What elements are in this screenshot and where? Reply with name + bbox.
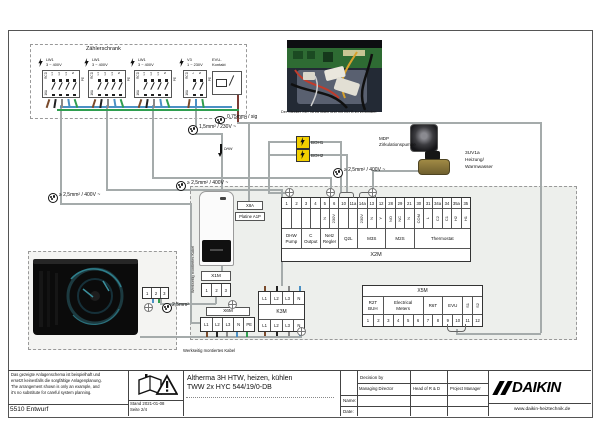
- terminal-dot: [151, 94, 154, 97]
- platine-a1p-box: Platine A1P: [235, 212, 265, 221]
- terminal-dot: [193, 94, 196, 97]
- x2m-terminal-4: 4: [310, 198, 319, 208]
- x2m-terminal-5: 5: [320, 198, 329, 208]
- x2m-terminal-34: 34: [442, 198, 451, 208]
- x1m-terminal-1: 1: [202, 284, 211, 296]
- indoor-unit-panel-text: [210, 249, 223, 251]
- indoor-unit-panel: [202, 240, 231, 262]
- valve-label-3: Warmwasser: [465, 165, 493, 171]
- wire-segment: [540, 122, 542, 333]
- x2m-symbol-cell: Y: [376, 208, 385, 228]
- terminal-dot: [112, 79, 115, 82]
- mdp-label-2: Zirkulationspumpe: [379, 142, 416, 147]
- zaehlerschrank-label: Zählerschrank: [86, 46, 121, 52]
- wire-segment: [106, 189, 281, 191]
- x5m-terminal-7: 7: [423, 314, 433, 326]
- x2m-terminal-34a: 34a: [432, 198, 441, 208]
- x5m-terminal-strip: X5M R2T BUHElectrical MetersR6TEVUS1S2 1…: [362, 285, 483, 327]
- x2m-symbol-cell: C1: [442, 208, 451, 228]
- k3m-contactor: L1L2L3N K3M L1L2L3N: [258, 291, 305, 332]
- k3m-top-terminal-L1: L1: [259, 292, 270, 304]
- x2m-terminal-10: 10: [338, 198, 347, 208]
- supply-bolt-icon: [84, 58, 89, 67]
- x2m-symbol-cell: COM: [414, 208, 423, 228]
- x2m-symbol-cell: 230V: [329, 208, 338, 228]
- breaker-box: RCD16AL1L2L3N: [42, 70, 80, 98]
- cable-icon-sig: [215, 116, 225, 124]
- cable-label-400-3: ≥ 2,5mm² / 400V ~: [344, 168, 385, 174]
- x2m-terminal-12: 12: [376, 198, 385, 208]
- terminal-dot: [98, 94, 101, 97]
- breaker-box: RCD16ALN: [183, 70, 207, 98]
- terminal-dot: [59, 79, 62, 82]
- breaker-voltage-label: 1 ~ 230V: [187, 62, 203, 67]
- cable-label-230: 1,5mm² / 230V ~: [199, 125, 236, 131]
- terminal-dot: [52, 94, 55, 97]
- decision-by-label: Decision by: [360, 375, 383, 380]
- terminal-dot: [165, 94, 168, 97]
- wire-segment: [106, 105, 108, 189]
- x5m-group-label: S2: [472, 297, 482, 314]
- x2m-terminal-strip: 1234561011a14a1312282921303134a3435a35 N…: [281, 197, 471, 262]
- role-managing-director: Managing Director: [359, 387, 393, 392]
- evu-relay-symbol: [216, 79, 227, 87]
- x2m-terminal-29: 29: [395, 198, 404, 208]
- terminal-label: L1: [50, 72, 54, 75]
- x6m-terminal-L3: L3: [222, 318, 233, 331]
- wire-segment: [195, 133, 222, 135]
- valve-image-body: [418, 159, 450, 175]
- terminal-label: N: [198, 72, 202, 74]
- terminal-label: N: [71, 72, 75, 74]
- terminal-label: L2: [149, 72, 153, 75]
- x2m-group-label: Q2L: [338, 228, 357, 248]
- terminal-dot: [158, 79, 161, 82]
- switch-symbol: [199, 82, 203, 90]
- cable-clamp-icon: [368, 188, 377, 197]
- wire-stub: [107, 99, 109, 108]
- valve-label-1: 3UV1a: [465, 151, 480, 157]
- x5m-terminal-5: 5: [403, 314, 413, 326]
- switch-symbol: [150, 82, 154, 90]
- switch-symbol: [164, 82, 168, 90]
- switch-symbol: [58, 82, 62, 90]
- rcd-label: RCD: [44, 72, 48, 79]
- x5m-terminal-2: 2: [373, 314, 383, 326]
- x2m-symbol-cell: H1: [461, 208, 470, 228]
- x2m-terminal-31: 31: [423, 198, 432, 208]
- amps-label: 16A: [44, 90, 48, 96]
- x2m-symbol-cell: [291, 208, 300, 228]
- rcd-label: RCD: [185, 72, 189, 79]
- x5m-group-label: R2T BUH: [363, 297, 383, 314]
- terminal-dot: [66, 79, 69, 82]
- wire-stub: [166, 99, 170, 108]
- x2m-group-label: Netz Regler: [320, 228, 339, 248]
- amps-label: 16A: [136, 90, 140, 96]
- cable-label-sig: 0,75mm² / sig: [227, 115, 257, 121]
- terminal-dot: [119, 94, 122, 97]
- platine-a1p-label: Platine A1P: [239, 214, 261, 219]
- x6m-terminal-N: N: [233, 318, 244, 331]
- cable-clamp-icon: [297, 327, 306, 336]
- x2m-symbol-cell: N: [404, 208, 413, 228]
- wire-segment: [57, 109, 239, 111]
- wire-segment: [340, 141, 342, 193]
- wire-segment: [248, 122, 250, 202]
- terminal-dot: [98, 79, 101, 82]
- wire-stub: [113, 99, 116, 108]
- x2m-terminal-35a: 35a: [451, 198, 460, 208]
- terminal-dot: [105, 79, 108, 82]
- breaker-box: RCD16AL1L2L3N: [88, 70, 126, 98]
- outdoor-terminal-2: 2: [151, 288, 159, 298]
- k3m-top-terminal-L2: L2: [270, 292, 281, 304]
- terminal-dot: [59, 94, 62, 97]
- x5m-group-label: S1: [462, 297, 472, 314]
- factory-cable-horizontal-label: Werkseitig montiertes Kabel: [183, 349, 235, 354]
- wire-segment: [140, 336, 302, 338]
- x2m-terminal-2: 2: [291, 198, 300, 208]
- x2m-group-label: C Output: [301, 228, 320, 248]
- date-label: Date:: [343, 409, 354, 414]
- x6m-terminal-L2: L2: [212, 318, 223, 331]
- x5m-evu-jumper: [447, 324, 466, 332]
- wire-stub: [46, 99, 50, 108]
- x2m-group-label: DHW Pump: [282, 228, 301, 248]
- x2m-symbol-cell: N: [320, 208, 329, 228]
- disclaimer-line-4: it's no substitute for careful system pl…: [11, 391, 91, 396]
- terminal-label: L: [191, 72, 195, 74]
- terminal-label: L2: [57, 72, 61, 75]
- x2m-group-label: Thermostat: [414, 228, 470, 248]
- switch-symbol: [118, 82, 122, 90]
- terminal-label: L1: [96, 72, 100, 75]
- terminal-label: N: [163, 72, 167, 74]
- x2m-terminal-13: 13: [367, 198, 376, 208]
- cable-label-400-2: ≥ 2,5mm² / 400V ~: [187, 181, 228, 187]
- x2m-symbol-cell: L: [423, 208, 432, 228]
- x5m-terminal-6: 6: [413, 314, 423, 326]
- wire-stub: [153, 99, 155, 108]
- switch-symbol: [65, 82, 69, 90]
- x5m-label: X5M: [363, 286, 482, 297]
- connector-photo: [287, 40, 382, 112]
- role-head-of-rd: Head of R & D: [413, 387, 440, 392]
- title-underline: [186, 397, 334, 398]
- x2m-symbol-cell: [348, 208, 357, 228]
- valve-label-2: Heizung/: [465, 158, 484, 164]
- outdoor-unit-photo: [33, 259, 138, 335]
- x2m-terminal-11a: 11a: [348, 198, 357, 208]
- wire-stub: [145, 99, 148, 108]
- wire-stub: [92, 99, 96, 108]
- terminal-dot: [165, 79, 168, 82]
- mdp-pump-image: [410, 124, 438, 152]
- x5m-terminal-8: 8: [432, 314, 442, 326]
- manual-warning-icon: [136, 374, 178, 399]
- x6m-terminals: L1L2L3NPE: [200, 317, 255, 332]
- wire-segment: [152, 105, 154, 177]
- wire-stub: [99, 99, 102, 108]
- wire-segment: [60, 105, 62, 203]
- photo-caption: Der Stecker X6Y ist zu lösen und mit X6Y…: [281, 110, 376, 114]
- cable-label-400-1: ≥ 2,5mm² / 400V ~: [59, 193, 100, 199]
- wire-stub: [61, 99, 63, 108]
- terminal-label: N: [117, 72, 121, 74]
- x2m-terminal-3: 3: [301, 198, 310, 208]
- amps-label: 16A: [185, 90, 189, 96]
- breaker-voltage-label: 3 ~ 400V: [92, 62, 108, 67]
- wire-segment: [268, 141, 270, 193]
- k3m-top-terminal-L3: L3: [282, 292, 293, 304]
- switch-symbol: [143, 82, 147, 90]
- schematic-sheet: Zählerschrank LW13 ~ 400VRCD16AL1L2L3NPE…: [0, 0, 600, 425]
- cable-icon-230: [188, 125, 198, 135]
- k3m-label: K3M: [259, 304, 304, 319]
- breaker-group-3: LW13 ~ 400VRCD16AL1L2L3NPE: [130, 57, 176, 109]
- k3m-bottom-terminal-L3: L3: [282, 319, 293, 331]
- x2m-terminal-21: 21: [404, 198, 413, 208]
- x2m-group-label: M3S: [357, 228, 385, 248]
- supply-bolt-icon: [130, 58, 135, 67]
- website: www.daikin-heiztechnik.de: [514, 407, 570, 413]
- x5m-terminal-4: 4: [393, 314, 403, 326]
- x2m-symbol-cell: C2: [432, 208, 441, 228]
- terminal-dot: [119, 79, 122, 82]
- k3m-top-terminal-N: N: [293, 292, 304, 304]
- x2m-symbol-cell: 230V: [357, 208, 366, 228]
- wire-stub: [201, 99, 204, 108]
- terminal-dot: [73, 94, 76, 97]
- x5m-terminal-1: 1: [363, 314, 373, 326]
- switch-symbol: [72, 82, 76, 90]
- rcd-label: RCD: [90, 72, 94, 79]
- outdoor-terminal-3: 3: [160, 288, 168, 298]
- wire-stub: [138, 99, 142, 108]
- wire-stub: [187, 99, 190, 108]
- x8a-label: X8A: [246, 203, 254, 208]
- supply-bolt-icon: [38, 58, 43, 67]
- terminal-label: L1: [142, 72, 146, 75]
- x1m-box: X1M: [201, 271, 231, 281]
- cable-icon-400-1: [48, 193, 58, 203]
- terminal-label: L3: [156, 72, 160, 75]
- wire-stub: [74, 99, 78, 108]
- dhw-label: DHW: [224, 147, 232, 151]
- x2m-terminal-35: 35: [461, 198, 470, 208]
- x2m-jumper-10-11a: [339, 192, 354, 198]
- terminal-dot: [73, 79, 76, 82]
- wire-segment: [456, 333, 541, 335]
- x2m-terminal-6: 6: [329, 198, 338, 208]
- page-number: Seite 2/4: [130, 408, 147, 413]
- switch-symbol: [104, 82, 108, 90]
- role-project-manager: Project Manager: [450, 387, 481, 392]
- x2m-group-label: M2S: [385, 228, 413, 248]
- x2m-symbol-cell: [282, 208, 291, 228]
- switch-symbol: [157, 82, 161, 90]
- evu-kontakt-label: EVU- Kontakt: [212, 58, 226, 67]
- x5m-terminal-12: 12: [472, 314, 482, 326]
- terminal-label: L2: [103, 72, 107, 75]
- terminal-dot: [112, 94, 115, 97]
- doc-number: 5510 Entwurf: [10, 406, 48, 413]
- x6m-terminal-PE: PE: [243, 318, 254, 331]
- breaker-box: RCD16AL1L2L3N: [134, 70, 172, 98]
- x2m-terminal-1: 1: [282, 198, 291, 208]
- supply-bolt-icon: [179, 58, 184, 67]
- x2m-symbol-cell: NO: [385, 208, 394, 228]
- x1m-terminal-2: 2: [211, 284, 220, 296]
- k3m-bottom-terminal-L2: L2: [270, 319, 281, 331]
- dhw-arrowhead: [218, 153, 222, 157]
- x8a-box: X8A: [237, 201, 263, 210]
- x2m-symbol-cell: [310, 208, 319, 228]
- wire-stub: [53, 99, 56, 108]
- cable-label-25: 2,5mm²: [172, 303, 189, 309]
- indoor-unit-display: [220, 197, 226, 200]
- cable-clamp-icon: [326, 188, 335, 197]
- daikin-logo-text: DAIKIN: [512, 379, 561, 396]
- x1m-terminals: 123: [201, 283, 231, 297]
- x1m-terminal-3: 3: [221, 284, 230, 296]
- breaker-voltage-label: 3 ~ 400V: [138, 62, 154, 67]
- wire-stub: [120, 99, 124, 108]
- drawing-title-line-2: TWW 2x HYC 544/19/0-DB: [187, 384, 272, 392]
- cable-icon-25: [162, 303, 172, 313]
- disclaimer-line-3: The arrangement shown is only an example…: [11, 385, 100, 390]
- rcd-label: RCD: [136, 72, 140, 79]
- amps-label: 16A: [90, 90, 94, 96]
- terminal-dot: [151, 79, 154, 82]
- wire-stub: [159, 99, 162, 108]
- dhw-arrow: [220, 144, 222, 153]
- terminal-dot: [158, 94, 161, 97]
- terminal-dot: [200, 94, 203, 97]
- x2m-symbol-cell: [338, 208, 347, 228]
- switch-symbol: [111, 82, 115, 90]
- terminal-dot: [193, 79, 196, 82]
- x5m-group-label: R6T: [423, 297, 443, 314]
- k3m-bottom-terminal-L1: L1: [259, 319, 270, 331]
- cable-clamp-icon: [228, 300, 237, 309]
- cable-icon-400-2: [176, 181, 186, 191]
- switch-symbol: [192, 82, 196, 90]
- switch-symbol: [51, 82, 55, 90]
- x2m-symbol-cell: NC: [395, 208, 404, 228]
- breaker-group-1: LW13 ~ 400VRCD16AL1L2L3NPE: [38, 57, 84, 109]
- x5m-group-label: EVU: [442, 297, 462, 314]
- terminal-dot: [200, 79, 203, 82]
- outdoor-terminal-1: 1: [143, 288, 151, 298]
- x6m-label: X6M: [223, 309, 233, 314]
- x5m-terminal-3: 3: [383, 314, 393, 326]
- name-label: Name:: [343, 398, 356, 403]
- cable-icon-400-3: [333, 168, 343, 178]
- x1m-label: X1M: [211, 274, 221, 279]
- terminal-dot: [105, 94, 108, 97]
- x5m-group-label: Electrical Meters: [383, 297, 423, 314]
- cable-clamp-icon: [144, 303, 153, 312]
- x2m-symbol-cell: [301, 208, 310, 228]
- cable-clamp-icon: [285, 188, 294, 197]
- boh2-label: BOH2: [311, 153, 323, 158]
- boh1-label: BOH1: [311, 140, 323, 145]
- disclaimer-line-1: Das gezeigte Anlagenschema ist beispielh…: [11, 373, 100, 378]
- terminal-dot: [52, 79, 55, 82]
- wire-segment: [237, 122, 540, 124]
- x2m-label: X2M: [282, 248, 470, 261]
- terminal-dot: [66, 94, 69, 97]
- terminal-dot: [144, 94, 147, 97]
- x2m-terminal-14a: 14a: [357, 198, 366, 208]
- disclaimer-line-2: ersetzt keinesfalls die sorgfältige Anla…: [11, 379, 102, 384]
- drawing-title-line-1: Altherma 3H HTW, heizen, kühlen: [187, 375, 292, 383]
- x2m-terminal-30: 30: [414, 198, 423, 208]
- breaker-group-2: LW13 ~ 400VRCD16AL1L2L3NPE: [84, 57, 130, 109]
- x6m-box: X6M: [206, 307, 250, 316]
- mdp-label-1: MDP: [379, 136, 389, 141]
- terminal-label: L3: [110, 72, 114, 75]
- terminal-label: L3: [64, 72, 68, 75]
- outdoor-terminals: 123: [142, 287, 169, 299]
- wire-segment: [60, 203, 190, 205]
- x2m-terminal-28: 28: [385, 198, 394, 208]
- wire-stub: [67, 99, 70, 108]
- pe-label: PE: [173, 77, 177, 81]
- x6m-terminal-L1: L1: [201, 318, 212, 331]
- terminal-dot: [144, 79, 147, 82]
- breaker-voltage-label: 3 ~ 400V: [46, 62, 62, 67]
- wire-segment: [152, 177, 330, 179]
- x2m-symbol-cell: H2: [451, 208, 460, 228]
- switch-symbol: [97, 82, 101, 90]
- wire-stub: [195, 99, 197, 108]
- x2m-symbol-cell: N: [367, 208, 376, 228]
- factory-cable-vertical-label: Werkseitig montiertes Kabel: [191, 213, 195, 293]
